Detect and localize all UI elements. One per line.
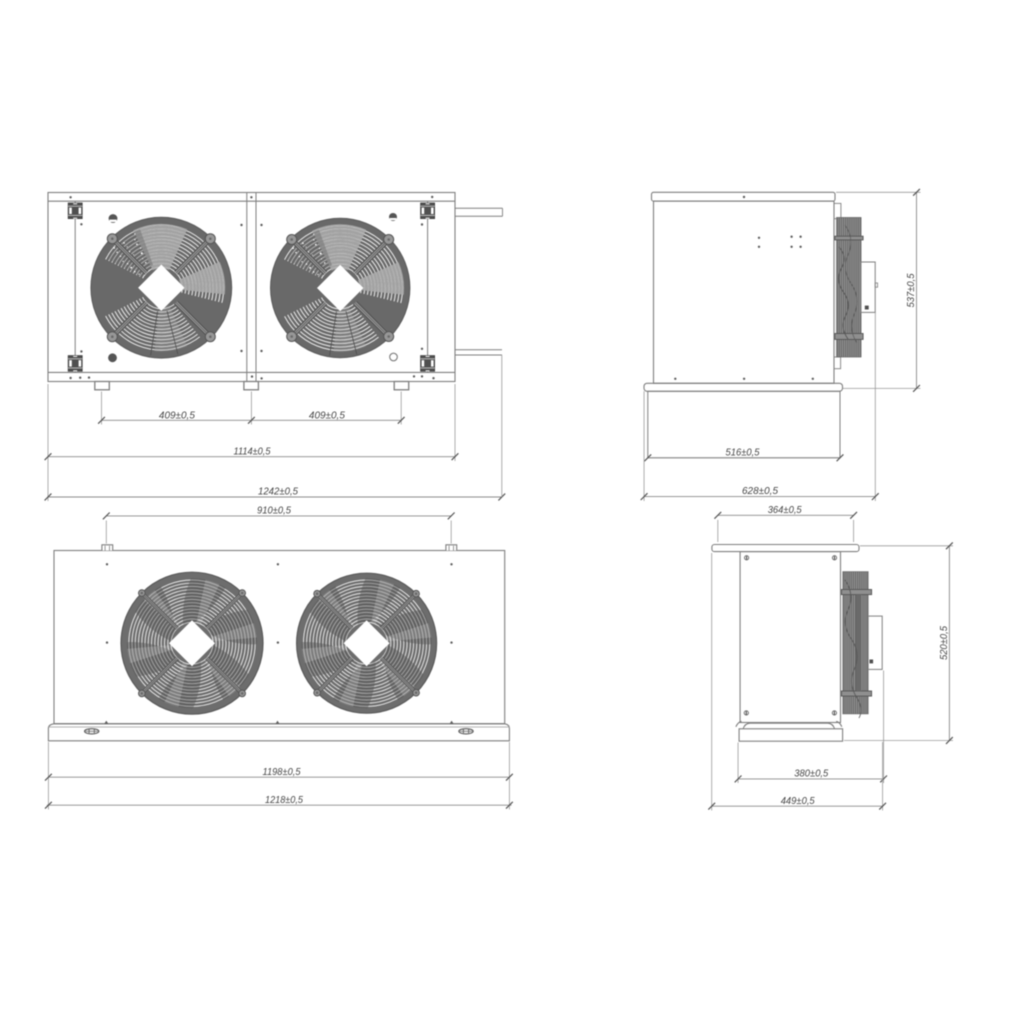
- svg-text:628±0,5: 628±0,5: [742, 485, 778, 497]
- svg-text:409±0,5: 409±0,5: [159, 409, 195, 421]
- svg-text:364±0,5: 364±0,5: [768, 504, 802, 516]
- svg-text:1114±0,5: 1114±0,5: [234, 445, 271, 457]
- svg-text:449±0,5: 449±0,5: [781, 795, 815, 807]
- svg-text:520±0,5: 520±0,5: [938, 626, 950, 660]
- svg-text:409±0,5: 409±0,5: [309, 409, 345, 421]
- svg-text:380±0,5: 380±0,5: [794, 768, 828, 780]
- svg-text:1242±0,5: 1242±0,5: [258, 486, 298, 498]
- svg-text:516±0,5: 516±0,5: [726, 446, 760, 458]
- svg-text:910±0,5: 910±0,5: [257, 505, 291, 517]
- svg-text:1218±0,5: 1218±0,5: [265, 794, 303, 806]
- svg-text:537±0,5: 537±0,5: [905, 273, 917, 307]
- svg-text:1198±0,5: 1198±0,5: [263, 766, 301, 778]
